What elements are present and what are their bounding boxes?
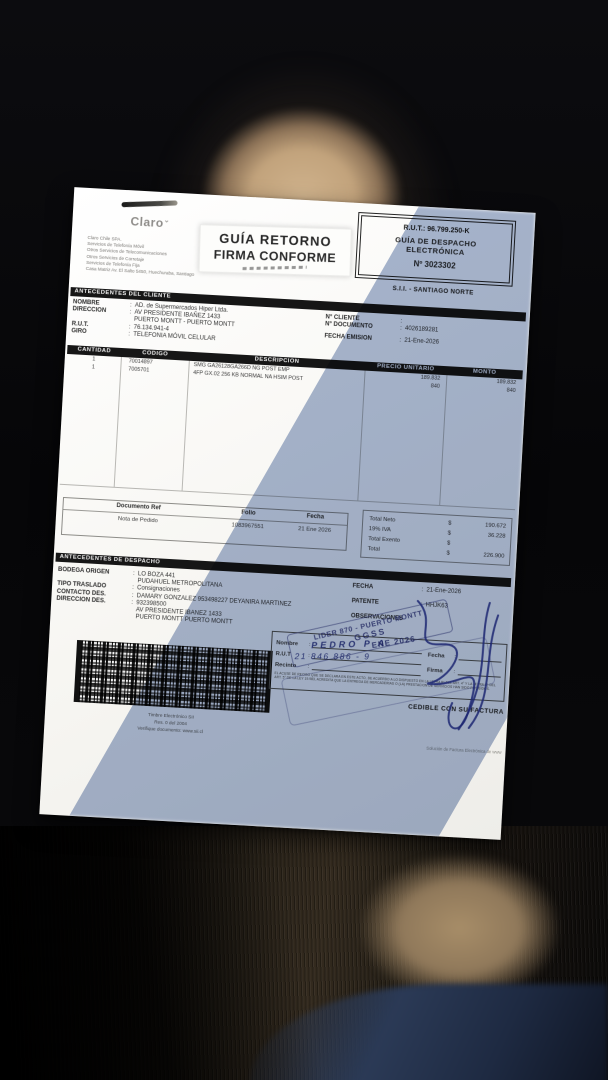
pen-mark bbox=[121, 200, 177, 207]
footer-note: Solución de Factura Electrónica de www bbox=[320, 740, 502, 755]
claro-logo-text: Claro bbox=[130, 214, 164, 230]
despacho-details: BODEGA ORIGEN:LO BOZA 441 PUDAHUEL METRO… bbox=[55, 567, 337, 633]
fabric-shadow bbox=[0, 826, 360, 1080]
table-divider bbox=[439, 375, 447, 505]
rut-doc-box: R.U.T.: 96.799.250-K GUÍA DE DESPACHO EL… bbox=[358, 215, 513, 283]
guia-retorno-sticker: GUÍA RETORNO FIRMA CONFORME bbox=[198, 224, 351, 276]
totals-box: Total Neto$190.672 19% IVA$36.228 Total … bbox=[360, 510, 512, 566]
table-divider bbox=[357, 371, 365, 501]
clothing-fabric bbox=[0, 826, 608, 1080]
barcode-caption: Timbre Electrónico SII Res. 0 del 2004 V… bbox=[72, 707, 269, 739]
doc-number: Nº 3023302 bbox=[359, 256, 509, 273]
pdf417-barcode bbox=[74, 640, 273, 713]
table-divider bbox=[114, 357, 122, 487]
document-ref-table: Documento Ref Folio Fecha Nota de Pedido… bbox=[61, 497, 349, 551]
company-info: Claro Chile SPA. Servicios de Telefonía … bbox=[86, 235, 197, 278]
claro-logo: Claro⌄ bbox=[130, 214, 170, 230]
docref-date: 21 Ene 2026 bbox=[282, 522, 347, 539]
items-table-body: 1 70014897 SMG GA26128GA266D NG POST EMP… bbox=[60, 354, 523, 510]
client-doc-details: N° CLIENTE: N° DOCUMENTO:4026189281 FECH… bbox=[324, 314, 521, 351]
docref-folio: 1083967551 bbox=[212, 518, 283, 535]
sticker-subtitle: FIRMA CONFORME bbox=[200, 247, 350, 265]
sticker-title: GUÍA RETORNO bbox=[200, 230, 350, 249]
sii-office: S.I.I. - SANTIAGO NORTE bbox=[357, 283, 509, 298]
sticker-scribble bbox=[243, 266, 307, 270]
document-content: Claro⌄ Claro Chile SPA. Servicios de Tel… bbox=[39, 187, 535, 840]
guia-de-despacho-document: Claro⌄ Claro Chile SPA. Servicios de Tel… bbox=[39, 187, 535, 840]
signature-scribble bbox=[397, 594, 508, 736]
table-divider bbox=[182, 361, 190, 491]
photo-of-delivery-document: Claro⌄ Claro Chile SPA. Servicios de Tel… bbox=[0, 0, 608, 1080]
claro-logo-tick: ⌄ bbox=[164, 217, 171, 224]
